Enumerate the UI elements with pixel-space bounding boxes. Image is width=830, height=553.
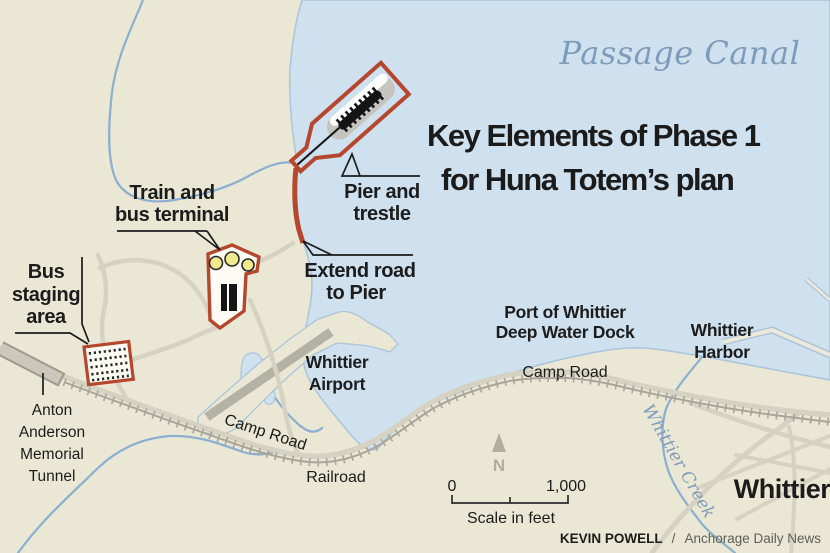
label-terminal-1: Train and bbox=[129, 182, 214, 204]
label-port-dock-2: Deep Water Dock bbox=[496, 322, 635, 342]
credit-author: KEVIN POWELL bbox=[560, 531, 663, 546]
label-port-dock-1: Port of Whittier bbox=[504, 302, 626, 322]
title-line-1: Key Elements of Phase 1 bbox=[427, 118, 761, 153]
label-bus-staging-2: staging bbox=[12, 284, 80, 306]
label-airport-1: Whittier bbox=[306, 352, 369, 372]
label-tunnel-3: Memorial bbox=[20, 446, 84, 463]
label-harbor-1: Whittier bbox=[691, 320, 754, 340]
label-pier-1: Pier and bbox=[344, 181, 420, 203]
scale-caption: Scale in feet bbox=[467, 510, 556, 527]
scale-max: 1,000 bbox=[546, 478, 586, 495]
north-label: N bbox=[493, 456, 505, 475]
credit-separator: / bbox=[672, 531, 676, 546]
train-platform-icon bbox=[221, 284, 237, 311]
label-extend-2: to Pier bbox=[326, 282, 386, 304]
label-tunnel-4: Tunnel bbox=[29, 468, 76, 485]
label-airport-2: Airport bbox=[309, 374, 366, 394]
label-tunnel-2: Anderson bbox=[19, 424, 85, 441]
label-terminal-2: bus terminal bbox=[115, 204, 229, 226]
label-railroad: Railroad bbox=[306, 469, 366, 486]
label-bus-staging-3: area bbox=[26, 306, 67, 328]
scale-zero: 0 bbox=[448, 478, 457, 495]
credit-line: KEVIN POWELL / Anchorage Daily News bbox=[560, 530, 821, 547]
label-whittier-town: Whittier bbox=[734, 474, 830, 504]
bus-staging-icon bbox=[84, 342, 133, 385]
map-graphic: Passage Canal Key Elements of Phase 1 fo… bbox=[0, 0, 830, 553]
label-bus-staging-1: Bus bbox=[28, 261, 65, 283]
map-canvas: Passage Canal Key Elements of Phase 1 fo… bbox=[0, 0, 830, 553]
label-tunnel-1: Anton bbox=[32, 402, 73, 419]
label-harbor-2: Harbor bbox=[694, 342, 750, 362]
label-camp-road-east: Camp Road bbox=[522, 364, 607, 381]
label-extend-1: Extend road bbox=[304, 260, 415, 282]
title-line-2: for Huna Totem’s plan bbox=[441, 162, 734, 197]
label-pier-2: trestle bbox=[353, 203, 411, 225]
passage-canal-label: Passage Canal bbox=[559, 34, 801, 72]
credit-source: Anchorage Daily News bbox=[684, 531, 821, 546]
